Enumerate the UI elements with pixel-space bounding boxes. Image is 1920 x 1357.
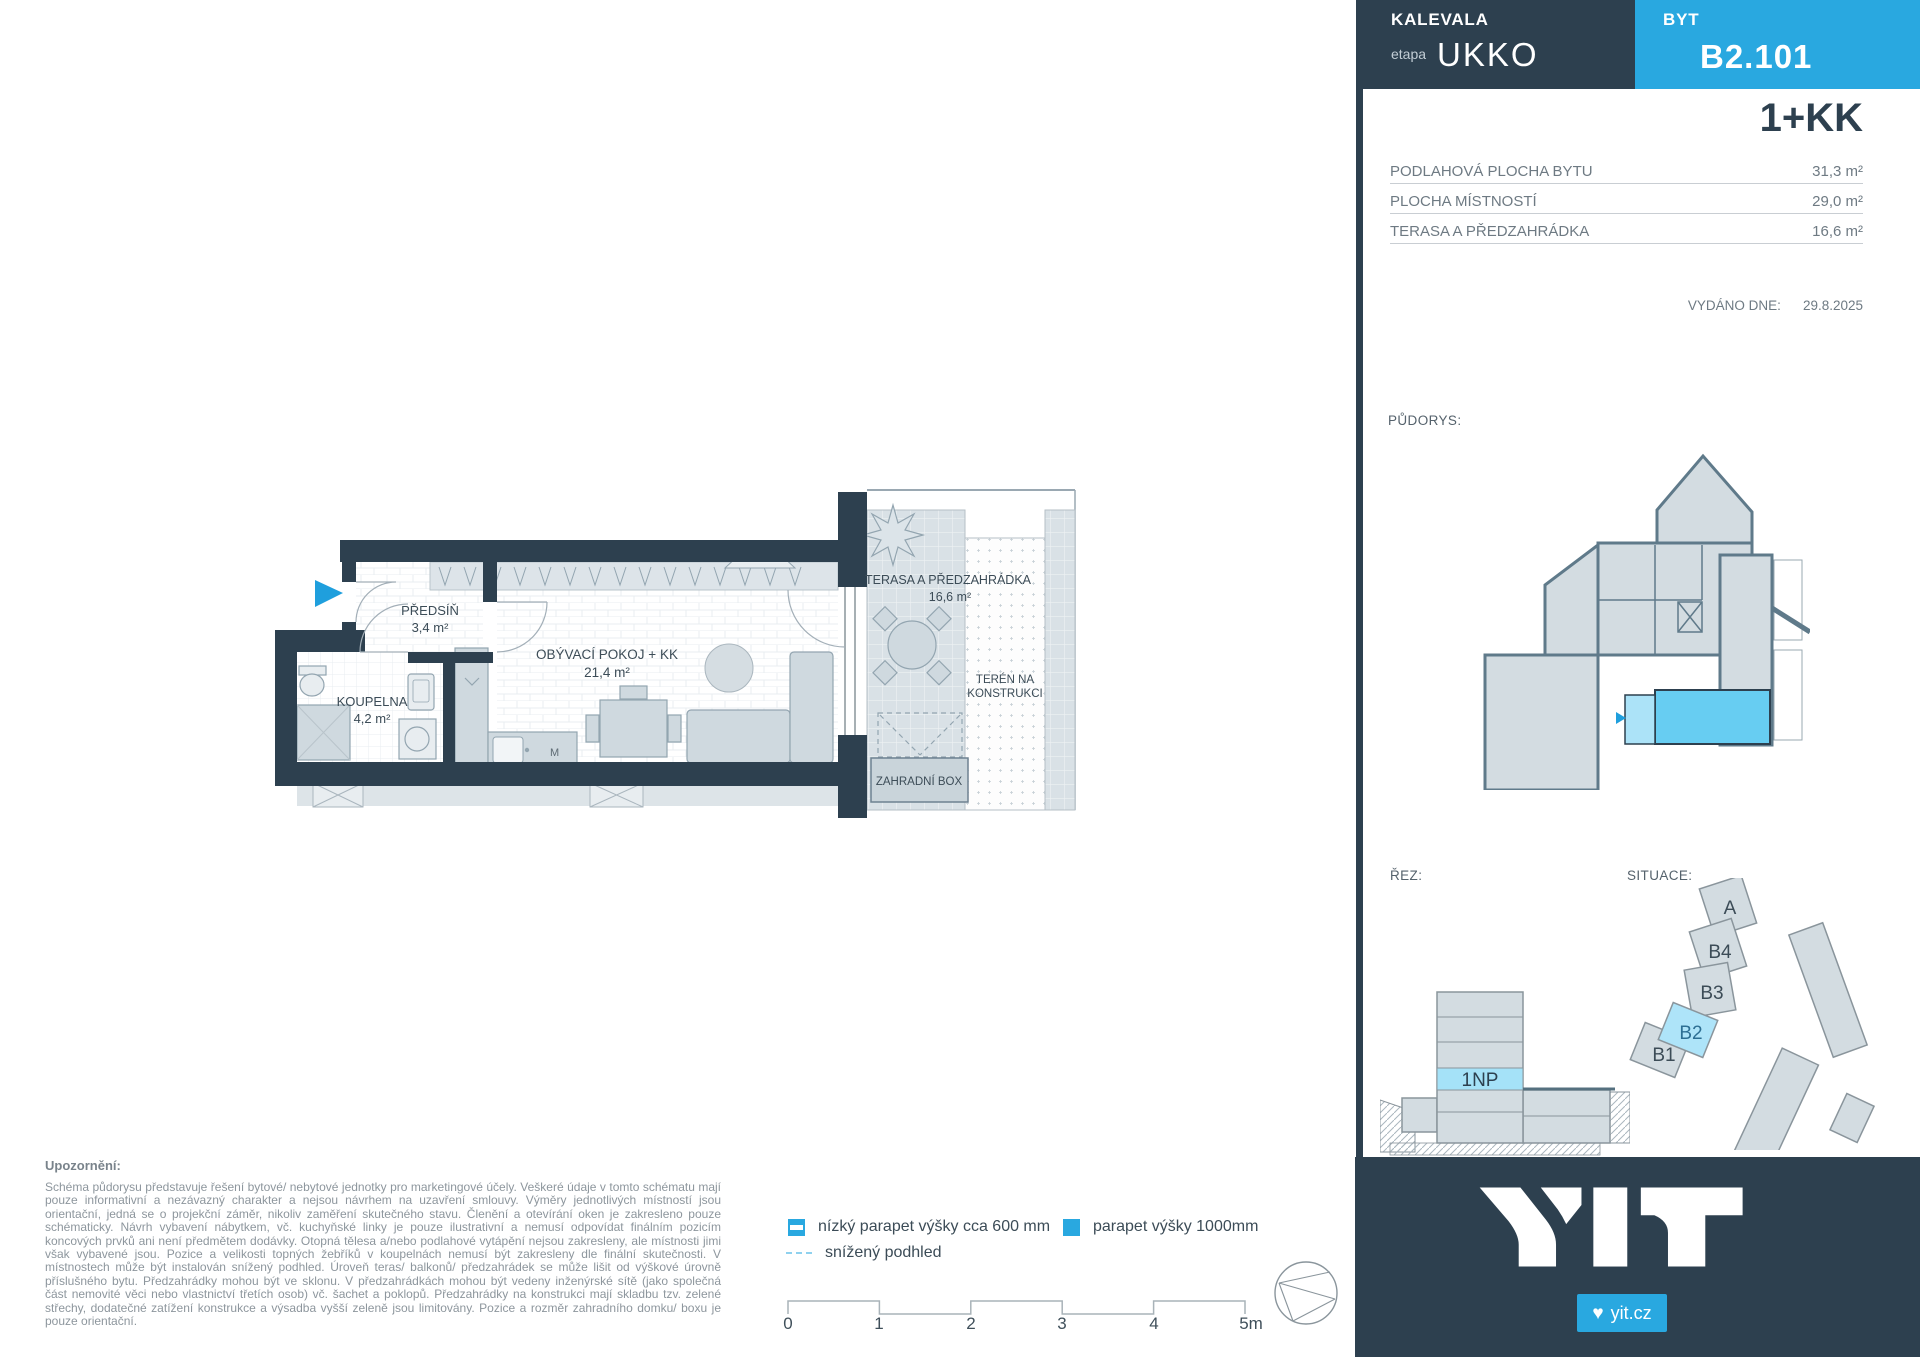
room-area-bathroom: 4,2 m² [354,711,392,726]
area-value: 16,6 m² [1812,223,1863,240]
section-label-pudorys: PŮDORYS: [1388,413,1461,428]
project-header: KALEVALA etapa UKKO [1363,0,1635,89]
building-floorplan-overview [1450,440,1810,790]
site-label-b4: B4 [1708,942,1732,963]
toilet-icon [299,666,326,696]
section-label-rez: ŘEZ: [1390,868,1422,883]
floor-label: 1NP [1462,1070,1499,1091]
table-row: PODLAHOVÁ PLOCHA BYTU 31,3 m² [1390,154,1863,184]
room-label-livingroom: OBÝVACÍ POKOJ + KK [536,647,678,662]
terrace-outlines [1774,560,1802,740]
washing-machine-icon [399,719,436,759]
scale-tick: 0 [783,1314,792,1334]
room-label-hall: PŘEDSÍŇ [401,603,459,618]
low-parapet-icon [788,1219,805,1236]
disclaimer-title: Upozornění: [45,1158,721,1173]
legend-label: nízký parapet výšky cca 600 mm [818,1218,1050,1236]
teren-label-2: KONSTRUKCI [967,688,1042,700]
etapa-label: etapa [1391,46,1426,62]
floorplan-sheet: ZAHRADNÍ BOX M [0,0,1920,1357]
etapa-value: UKKO [1437,36,1539,74]
scale-tick: 5m [1239,1314,1263,1334]
issued-date: 29.8.2025 [1803,298,1863,313]
terrace-tiles-right [1045,510,1075,810]
site-label-b3: B3 [1700,983,1723,1004]
rug [705,644,753,692]
scale-bar [786,1296,1250,1318]
project-name: KALEVALA [1391,10,1489,30]
legend-label: parapet výšky 1000mm [1093,1218,1258,1236]
shower [297,705,350,760]
teren-label-1: TERÉN NA [976,673,1034,686]
panel-left-border [1356,0,1363,1357]
room-area-hall: 3,4 m² [412,620,450,635]
unit-label: BYT [1663,10,1699,30]
area-value: 31,3 m² [1812,163,1863,180]
legend-label: snížený podhled [825,1244,942,1262]
site-building [1789,923,1867,1057]
stove-mark: M [550,747,559,759]
disclaimer-body: Schéma půdorysu představuje řešení bytov… [45,1181,721,1328]
area-label: PODLAHOVÁ PLOCHA BYTU [1390,163,1593,180]
room-label-terrace: TERASA A PŘEDZAHRÁDKA [865,572,1032,587]
area-value: 29,0 m² [1812,193,1863,210]
table-row: PLOCHA MÍSTNOSTÍ 29,0 m² [1390,184,1863,214]
disclaimer: Upozornění: Schéma půdorysu představuje … [45,1158,721,1328]
tree-icon [863,505,923,565]
terrace-window [845,587,855,735]
yit-logo [1478,1186,1746,1268]
north-compass-icon [1272,1258,1342,1328]
scale-tick: 2 [966,1314,975,1334]
site-building [1830,1094,1874,1143]
room-area-terrace: 16,6 m² [929,590,971,604]
issued-row: VYDÁNO DNE: 29.8.2025 [1390,298,1863,313]
area-label: TERASA A PŘEDZAHRÁDKA [1390,223,1589,240]
heart-icon: ♥ [1592,1304,1603,1323]
legend-item-ceiling: snížený podhled [786,1244,942,1262]
issued-label: VYDÁNO DNE: [1688,298,1781,313]
room-area-livingroom: 21,4 m² [584,665,630,680]
unit-code: B2.101 [1700,38,1812,76]
building-section-drawing: 1NP [1380,980,1630,1160]
scale-tick: 1 [874,1314,883,1334]
sink-icon [408,674,434,710]
yit-site-label: yit.cz [1611,1303,1652,1324]
yit-cz-link[interactable]: ♥ yit.cz [1577,1294,1667,1332]
parapet-icon [1063,1219,1080,1236]
site-label-a: A [1724,898,1737,919]
scale-tick: 4 [1149,1314,1158,1334]
area-label: PLOCHA MÍSTNOSTÍ [1390,193,1537,210]
area-table: PODLAHOVÁ PLOCHA BYTU 31,3 m² PLOCHA MÍS… [1390,154,1863,244]
highlighted-unit-rooms [1625,695,1655,744]
apartment-floorplan-drawing: ZAHRADNÍ BOX M [225,435,1105,835]
entrance-arrow-icon [315,580,343,607]
scale-tick: 3 [1057,1314,1066,1334]
layout-type: 1+KK [1390,96,1863,141]
room-label-bathroom: KOUPELNA [337,694,408,709]
site-label-b2: B2 [1679,1023,1702,1044]
table-row: TERASA A PŘEDZAHRÁDKA 16,6 m² [1390,214,1863,244]
site-building [1732,1048,1819,1150]
legend-item-low-parapet: nízký parapet výšky cca 600 mm [788,1218,1050,1236]
highlighted-unit [1655,690,1770,744]
base-band [297,786,838,806]
dashed-line-icon [786,1252,812,1254]
site-label-b1: B1 [1652,1045,1675,1066]
unit-header: BYT B2.101 [1635,0,1920,89]
garden-box-label: ZAHRADNÍ BOX [876,775,963,788]
legend-item-parapet: parapet výšky 1000mm [1063,1218,1258,1236]
site-plan-drawing: A B4 B3 B2 B1 [1620,878,1920,1150]
